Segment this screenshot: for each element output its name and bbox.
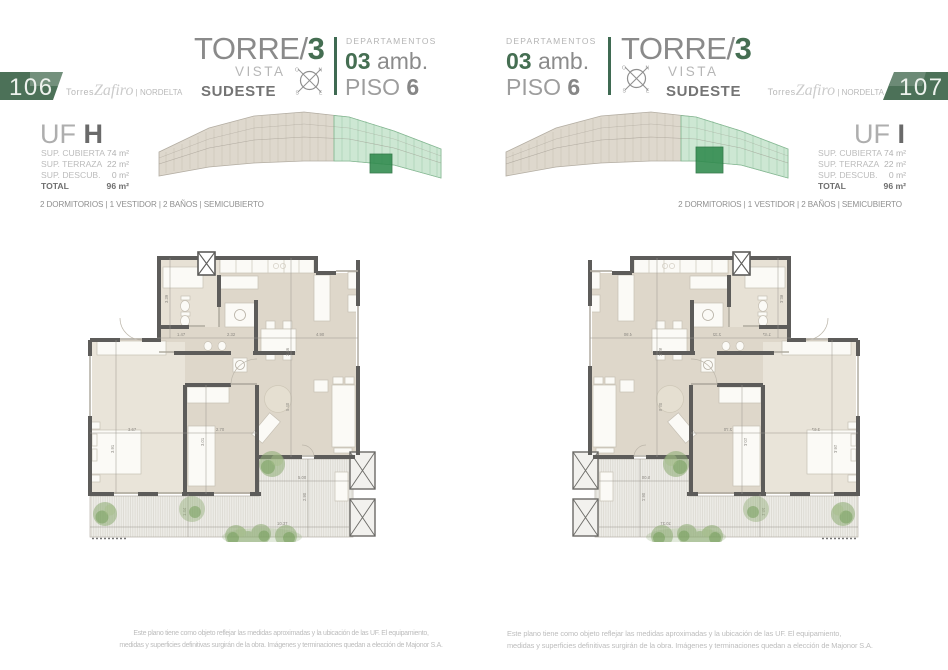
- svg-text:E: E: [319, 91, 323, 96]
- svg-text:N: N: [319, 68, 323, 74]
- svg-text:O: O: [295, 68, 299, 74]
- svg-text:N: N: [646, 66, 650, 72]
- svg-text:O: O: [622, 66, 626, 72]
- svg-text:E: E: [646, 89, 650, 94]
